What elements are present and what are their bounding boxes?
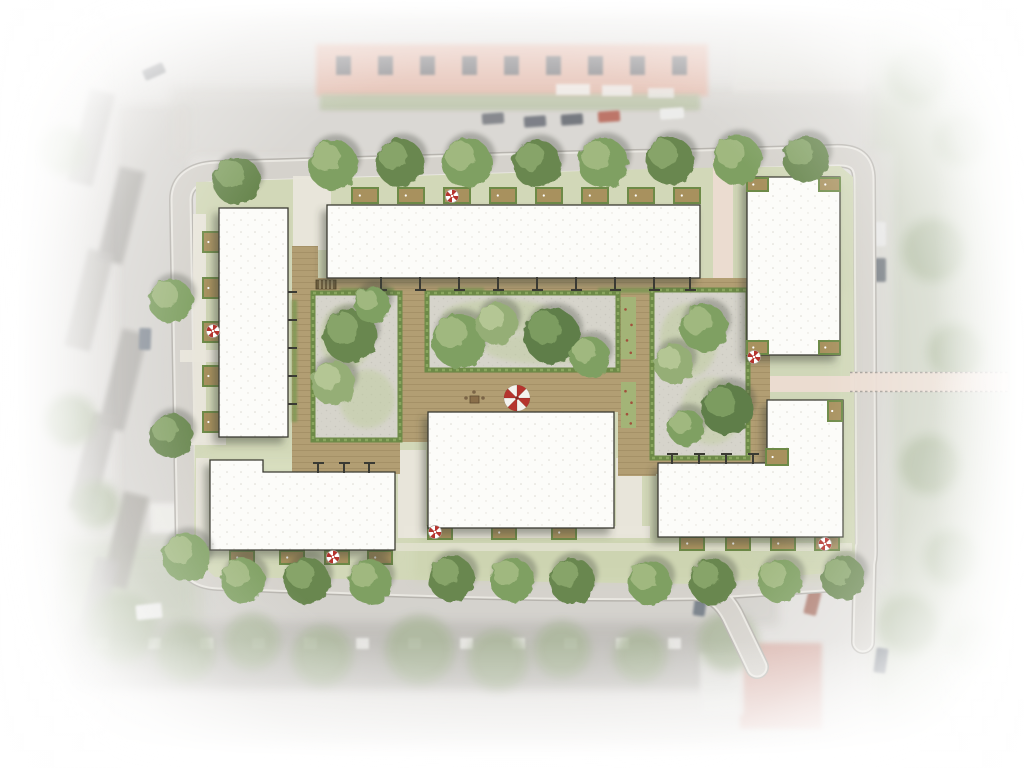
tree-canopy-highlight [552, 561, 579, 588]
plot-detail [772, 456, 774, 458]
plot-detail [359, 194, 361, 196]
planted-bed [621, 382, 636, 428]
pinwheel-hub [753, 356, 756, 359]
parasol-pole [515, 396, 519, 400]
tree-canopy-highlight [824, 559, 850, 585]
tree-canopy-highlight [528, 311, 560, 343]
garden-plot [490, 188, 516, 203]
pinwheel-hub [332, 556, 335, 559]
tree-canopy-highlight [224, 562, 250, 588]
plot-detail [752, 346, 754, 348]
garden-plot [726, 537, 750, 550]
building-northeast-roof [747, 177, 840, 355]
chair [481, 396, 485, 400]
tree-canopy-highlight [379, 142, 407, 170]
chair [464, 396, 468, 400]
garden-plot [203, 366, 221, 386]
pinwheel [429, 526, 442, 539]
plot-detail [286, 556, 288, 558]
bed-flower [629, 422, 632, 425]
tree-canopy-highlight [357, 289, 378, 310]
building-south-center [428, 412, 614, 528]
building-southwest [210, 460, 395, 550]
tree-canopy-highlight [705, 386, 735, 416]
tree-canopy-highlight [516, 143, 544, 171]
plot-detail [777, 542, 779, 544]
bed-flower [630, 401, 633, 404]
plot-detail [207, 241, 209, 243]
tree-canopy-highlight [671, 412, 692, 433]
pinwheel [327, 551, 340, 564]
tree-canopy-highlight [683, 307, 711, 335]
building-northeast [747, 177, 840, 355]
tree-canopy-highlight [432, 559, 459, 586]
building-southwest-roof [210, 460, 395, 550]
garden-plot [819, 178, 840, 191]
garden-plot [203, 278, 221, 298]
plot-detail [831, 410, 833, 412]
building-west-roof [219, 208, 288, 437]
pinwheel-hub [434, 531, 437, 534]
tree-canopy-highlight [582, 141, 611, 170]
plot-detail [752, 183, 754, 185]
pinwheel [819, 538, 832, 551]
chair [472, 390, 476, 394]
tree-canopy-highlight [287, 561, 314, 588]
garden-plot [766, 449, 788, 465]
plot-detail [497, 194, 499, 196]
plot-detail [589, 194, 591, 196]
garden-plot [628, 188, 654, 203]
plot-detail [207, 421, 209, 423]
footbridge [850, 372, 1008, 392]
tree-canopy-highlight [716, 138, 745, 167]
bed-flower [629, 352, 632, 355]
plot-detail [824, 183, 826, 185]
tree-canopy-highlight [692, 562, 719, 589]
tree-canopy-highlight [573, 339, 596, 362]
building-south-center-roof [428, 412, 614, 528]
tree-canopy-highlight [312, 143, 341, 172]
plot-detail [732, 542, 734, 544]
pinwheel-hub [824, 543, 827, 546]
garden-plot [352, 188, 378, 203]
tree-canopy-highlight [761, 562, 787, 588]
plot-detail [686, 542, 688, 544]
picnic-table [470, 396, 479, 403]
tree-canopy-highlight [314, 364, 340, 390]
plot-detail [207, 287, 209, 289]
pinwheel [207, 325, 220, 338]
site-plan [0, 0, 1024, 768]
tree-canopy-highlight [493, 561, 519, 587]
plot-detail [207, 375, 209, 377]
pinwheel [446, 190, 459, 203]
bed-flower [624, 390, 627, 393]
plot-detail [558, 531, 560, 533]
planted-bed [621, 297, 636, 359]
garden-plot [398, 188, 424, 203]
timber-deck [427, 368, 642, 412]
pinwheel-hub [212, 330, 215, 333]
plot-detail [635, 194, 637, 196]
garden-plot [680, 537, 704, 550]
garden-plot [828, 401, 842, 421]
timber-deck [398, 293, 429, 442]
timber-deck [310, 440, 400, 474]
bed-flower [626, 339, 629, 342]
garden-plot [674, 188, 700, 203]
garden-plot [203, 232, 221, 252]
bench [316, 280, 336, 289]
tree-canopy-highlight [631, 564, 657, 590]
bed-flower [626, 413, 629, 416]
bed-flower [624, 308, 627, 311]
footpath [398, 450, 426, 538]
tree-canopy-highlight [152, 282, 178, 308]
tree-canopy-highlight [436, 317, 467, 348]
plot-detail [405, 194, 407, 196]
garden-plot [771, 537, 795, 550]
pinwheel [748, 351, 761, 364]
garden-plot [582, 188, 608, 203]
tree-canopy-highlight [216, 160, 244, 188]
tree-canopy-highlight [786, 139, 813, 166]
garden-plot [203, 412, 221, 432]
tree-canopy-highlight [479, 306, 503, 330]
site-plan-rendering [0, 0, 1024, 768]
plot-detail [498, 531, 500, 533]
bed-flower [630, 324, 633, 327]
garden-plot [819, 341, 840, 354]
plot-detail [681, 194, 683, 196]
tree-canopy-highlight [649, 140, 677, 168]
tree-canopy-highlight [351, 563, 377, 589]
tree-canopy-highlight [327, 312, 358, 343]
tree-canopy-highlight [446, 141, 475, 170]
tree-canopy-highlight [165, 536, 193, 564]
building-north-long [327, 205, 700, 278]
pinwheel-hub [451, 195, 454, 198]
building-west [219, 208, 288, 437]
tree-canopy-highlight [657, 346, 680, 369]
plot-detail [543, 194, 545, 196]
tree-canopy-highlight [152, 417, 178, 443]
garden-plot [536, 188, 562, 203]
plot-detail [824, 346, 826, 348]
building-north-long-roof [327, 205, 700, 278]
